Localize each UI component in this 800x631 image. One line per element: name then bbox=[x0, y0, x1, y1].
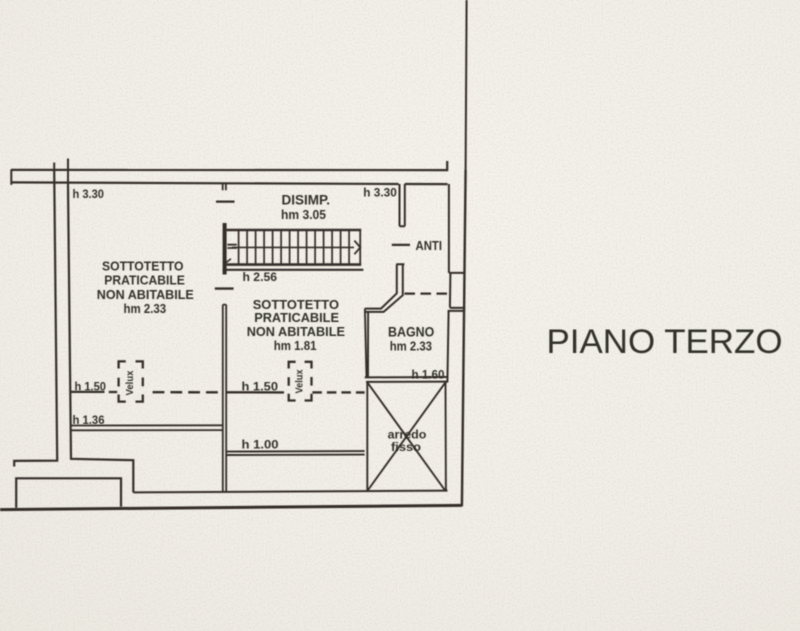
svg-text:h 1.60: h 1.60 bbox=[412, 367, 445, 381]
svg-text:h 3.30: h 3.30 bbox=[73, 187, 105, 201]
svg-text:hm 2.33: hm 2.33 bbox=[390, 338, 432, 353]
svg-text:Velux: Velux bbox=[125, 370, 136, 396]
svg-text:hm 3.05: hm 3.05 bbox=[281, 208, 326, 222]
svg-text:ANTI: ANTI bbox=[416, 239, 443, 253]
svg-text:h 2.56: h 2.56 bbox=[243, 270, 278, 284]
svg-text:hm 2.33: hm 2.33 bbox=[124, 302, 167, 316]
svg-text:h 1.00: h 1.00 bbox=[242, 438, 279, 452]
svg-text:BAGNO: BAGNO bbox=[388, 323, 434, 339]
svg-text:NON ABITABILE: NON ABITABILE bbox=[97, 287, 194, 302]
svg-text:hm 1.81: hm 1.81 bbox=[274, 339, 317, 353]
svg-text:fisso: fisso bbox=[391, 440, 421, 454]
svg-text:SOTTOTETTO: SOTTOTETTO bbox=[102, 259, 184, 274]
svg-text:h 1.50: h 1.50 bbox=[242, 379, 279, 393]
svg-text:h 1.50: h 1.50 bbox=[75, 379, 107, 393]
svg-text:PRATICABILE: PRATICABILE bbox=[104, 273, 185, 288]
svg-text:Velux: Velux bbox=[295, 369, 306, 394]
svg-text:DISIMP.: DISIMP. bbox=[282, 192, 331, 207]
svg-text:NON ABITABILE: NON ABITABILE bbox=[247, 324, 346, 339]
svg-text:h 3.30: h 3.30 bbox=[363, 186, 397, 200]
svg-text:h 1.36: h 1.36 bbox=[73, 413, 105, 427]
svg-text:PRATICABILE: PRATICABILE bbox=[254, 310, 339, 325]
svg-text:PIANO TERZO: PIANO TERZO bbox=[547, 323, 783, 361]
